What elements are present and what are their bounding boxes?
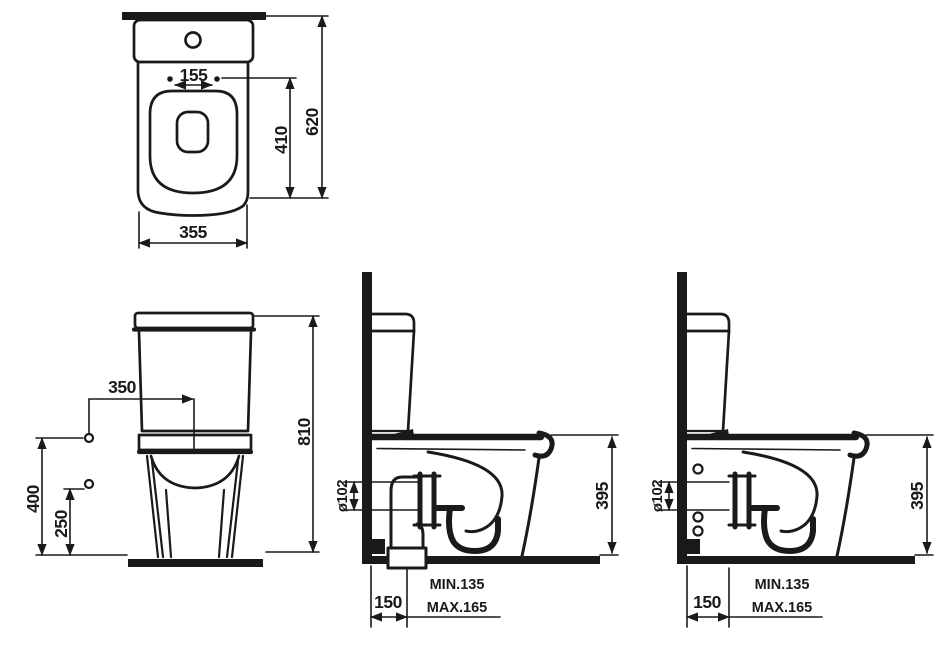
dim-supply-height-upper: 400 bbox=[23, 438, 127, 555]
mounting-hole-1 bbox=[694, 465, 703, 474]
dim-seat-depth: 410 bbox=[222, 78, 296, 198]
dim-width-label: 355 bbox=[179, 222, 207, 242]
side-view-wall-outlet: ø102 395 150 MIN.135 MAX.165 bbox=[649, 272, 933, 627]
mounting-holes bbox=[694, 465, 703, 536]
dim-hinge-spacing-label: 155 bbox=[180, 65, 208, 85]
dim-outlet-range: MIN.135 MAX.165 bbox=[729, 577, 822, 617]
dim-outlet-wall-distance: 150 bbox=[371, 566, 407, 627]
dim-rim-height: 395 bbox=[866, 435, 933, 555]
dim-outlet-diameter: ø102 bbox=[334, 480, 418, 512]
base-plate bbox=[128, 559, 263, 567]
dim-hinge-spacing: 155 bbox=[175, 65, 212, 85]
dim-outlet-max-label: MAX.165 bbox=[752, 600, 812, 616]
dim-total-depth-label: 620 bbox=[302, 107, 322, 135]
supply-point-lower bbox=[85, 480, 93, 488]
dim-outlet-wall-distance: 150 bbox=[687, 566, 729, 627]
dim-rim-height-label: 395 bbox=[907, 481, 927, 509]
dim-outlet-wall-distance-label: 150 bbox=[693, 592, 721, 612]
dim-supply-height-upper-label: 400 bbox=[23, 484, 43, 512]
top-view: 155 410 620 355 bbox=[122, 12, 328, 248]
hinge-hole-right bbox=[214, 76, 220, 82]
dim-rim-height: 395 bbox=[551, 435, 618, 555]
dim-outlet-min-label: MIN.135 bbox=[430, 577, 485, 593]
dim-outlet-diameter-label: ø102 bbox=[649, 480, 666, 512]
mounting-hole-2 bbox=[694, 513, 703, 522]
dim-supply-height-lower: 250 bbox=[51, 489, 84, 555]
outlet-pipe-horizontal bbox=[687, 482, 729, 510]
supply-point-upper bbox=[85, 434, 93, 442]
pedestal-legs bbox=[147, 456, 243, 557]
dim-outlet-max-label: MAX.165 bbox=[427, 600, 487, 616]
dim-total-depth: 620 bbox=[250, 16, 328, 198]
seat-band bbox=[139, 435, 251, 450]
pipe-collar bbox=[388, 548, 426, 568]
dim-outlet-diameter-label: ø102 bbox=[334, 480, 351, 512]
cistern-body bbox=[139, 332, 251, 431]
side-profile bbox=[362, 272, 600, 564]
cistern-outline-plan bbox=[134, 20, 253, 62]
hinge-hole-left bbox=[167, 76, 173, 82]
dim-total-height-label: 810 bbox=[294, 417, 314, 445]
dim-supply-height-lower-label: 250 bbox=[51, 509, 71, 537]
front-view: 350 810 400 250 bbox=[23, 313, 319, 567]
mounting-hole-3 bbox=[694, 527, 703, 536]
technical-drawing-page: 155 410 620 355 bbox=[0, 0, 938, 646]
dim-outlet-min-label: MIN.135 bbox=[755, 577, 810, 593]
dim-seat-depth-label: 410 bbox=[271, 125, 291, 153]
bowl-opening bbox=[177, 112, 208, 152]
dim-outlet-range: MIN.135 MAX.165 bbox=[407, 577, 500, 617]
side-view-floor-outlet: ø102 395 150 MIN.135 MAX.165 bbox=[334, 272, 618, 627]
bowl-underside bbox=[151, 456, 239, 488]
seat-outline-plan bbox=[150, 91, 237, 193]
flush-button bbox=[186, 33, 201, 48]
cistern-lid bbox=[135, 313, 253, 328]
side-profile bbox=[677, 272, 915, 564]
dim-total-height: 810 bbox=[255, 316, 319, 552]
toilet-technical-drawing: 155 410 620 355 bbox=[0, 0, 938, 646]
dim-rim-height-label: 395 bbox=[592, 481, 612, 509]
dim-outlet-wall-distance-label: 150 bbox=[374, 592, 402, 612]
dim-supply-offset-label: 350 bbox=[108, 377, 136, 397]
